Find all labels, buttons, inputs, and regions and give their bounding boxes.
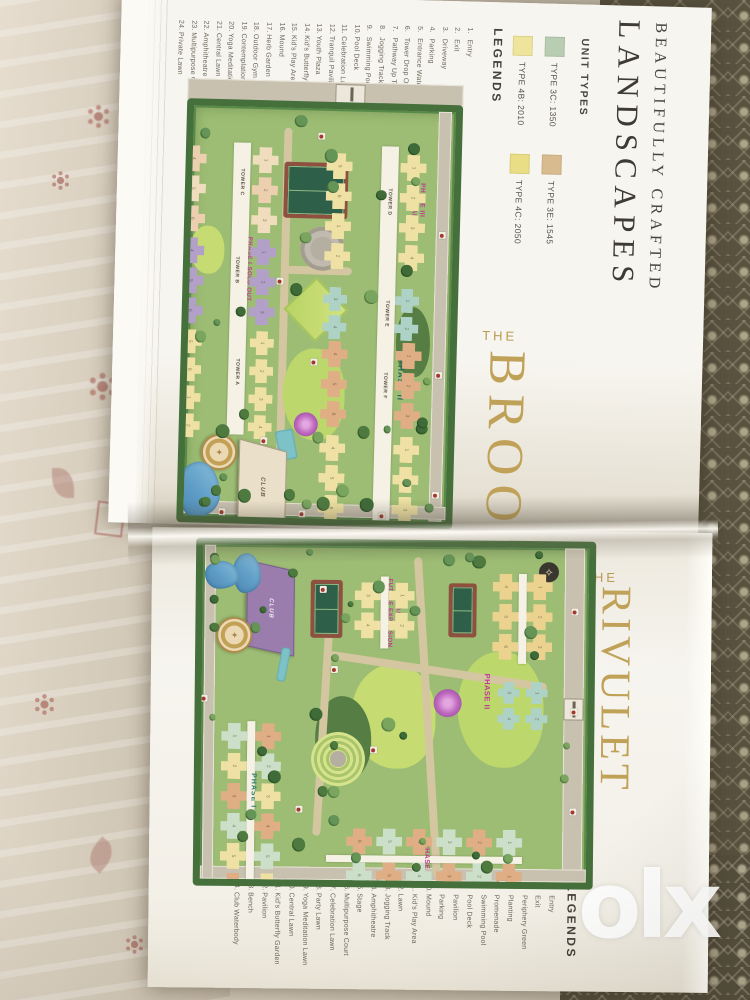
fabric-flower-motif [57, 177, 64, 184]
legend-marker [295, 806, 302, 813]
legend-item: 9.Parking [437, 882, 445, 967]
unit-type-item: TYPE 3E: 1545 [533, 154, 568, 273]
rivulet-site-map: ✧ CLUB ✦ [193, 538, 597, 890]
legend-marker [370, 746, 377, 753]
residential-tower: 6 [183, 357, 201, 382]
legend-item: 15.Stage [355, 881, 363, 966]
tree [300, 232, 311, 243]
residential-tower: 4 [493, 574, 519, 600]
residential-tower: 2 [249, 269, 276, 296]
tree [357, 426, 370, 439]
legend-item: 23.Bench [246, 880, 254, 965]
tree [211, 485, 222, 496]
rivulet-map-canvas: ✧ CLUB ✦ [200, 545, 589, 883]
residential-tower: 3 [254, 783, 280, 809]
legends-title: LEGENDS [564, 883, 579, 959]
tree [200, 128, 211, 139]
fabric-flower-motif [97, 381, 108, 392]
tree [419, 838, 426, 845]
tree [292, 838, 305, 851]
legend-item: 4.Planting [506, 883, 514, 968]
tree [408, 142, 420, 154]
residential-tower: 3 [248, 387, 273, 412]
residential-tower: 1 [496, 830, 522, 856]
tree [330, 741, 339, 750]
residential-tower: 3 [436, 829, 462, 855]
unit-type-swatch [509, 154, 530, 175]
tower-corridor [372, 146, 399, 522]
tree [336, 484, 349, 497]
tree [360, 498, 374, 512]
tree [259, 607, 266, 614]
tree [425, 504, 433, 512]
tree [268, 770, 281, 783]
tower-label: TOWER A [234, 358, 241, 385]
legend-item: 6.Swimming Pool [478, 883, 486, 968]
tree [210, 595, 219, 604]
unit-type-item: TYPE 3C: 1350 [536, 36, 571, 155]
residential-tower: 2 [252, 177, 279, 204]
tree [559, 774, 568, 783]
tree [250, 622, 261, 633]
residential-tower: 1 [250, 331, 275, 356]
tree [209, 714, 216, 721]
tree [401, 265, 413, 277]
fabric-flower-motif [131, 941, 138, 948]
tree [327, 181, 339, 193]
unit-type-label: TYPE 3E: 1545 [545, 181, 557, 245]
pond [205, 561, 239, 589]
club-building: CLUB [237, 439, 287, 522]
lawn [457, 651, 544, 768]
legend-item: 1.Entry [547, 883, 555, 968]
legend-item: 8.Pavilion [451, 882, 459, 967]
tower-label: TOWER C [239, 169, 246, 196]
legend-item: 7.Pool Deck [465, 882, 473, 967]
legend-item: 1.Entry [464, 27, 473, 118]
residential-tower: 1 [255, 723, 281, 749]
legend-marker [432, 492, 439, 499]
legend-item: 22.Pavilion [259, 880, 267, 965]
title-rivulet: RIVULET [590, 586, 640, 794]
legend-marker [201, 695, 208, 702]
tree [417, 417, 428, 428]
unit-types-title: UNIT TYPES [577, 38, 591, 116]
legend-item: 14.Amphitheatre [369, 881, 377, 966]
residential-tower: 2 [466, 829, 492, 855]
legend-item: 10.Mound [424, 882, 432, 967]
legend-item: 5.Promenade [492, 883, 500, 968]
tree [472, 555, 486, 569]
tree [245, 809, 256, 820]
tree [237, 831, 248, 842]
unit-types-legend: TYPE 3C: 1350TYPE 3E: 1545TYPE 4B: 2010T… [501, 35, 571, 267]
residential-tower: 1 [221, 723, 247, 749]
legend-marker [331, 666, 338, 673]
page-the-brook: BEAUTIFULLY CRAFTED LANDSCAPES UNIT TYPE… [108, 0, 712, 538]
residential-tower: 6 [183, 297, 203, 324]
legend-marker [378, 512, 385, 519]
tree [239, 409, 250, 420]
unit-type-item: TYPE 4C: 2050 [501, 153, 536, 272]
legend-item: 11.Kid's Play Area [410, 882, 418, 967]
map-road [428, 112, 452, 522]
residential-tower: 2 [249, 359, 274, 384]
flower-garden [433, 689, 461, 717]
phase2-label: PHASE II [482, 674, 492, 710]
fabric-flower-motif [40, 700, 48, 708]
tower-label: TOWER B [233, 256, 240, 283]
tree [312, 431, 324, 443]
legend-marker [310, 358, 317, 365]
residential-tower: 3 [251, 207, 278, 234]
legend-marker [439, 232, 446, 239]
tree [195, 331, 207, 343]
unit-type-label: TYPE 4C: 2050 [513, 180, 525, 245]
legend-item: 18.Party Lawn [314, 881, 322, 966]
residential-tower: 4 [247, 415, 272, 440]
unit-type-swatch [513, 36, 534, 57]
tree [220, 473, 228, 481]
legends-title: LEGENDS [489, 28, 505, 104]
residential-tower: 5 [183, 175, 206, 202]
club-label: CLUB [259, 476, 265, 498]
tree [472, 852, 480, 860]
legend-item: 20.Central Lawn [287, 881, 295, 966]
gold-emblem: ✦ [216, 617, 252, 653]
tree [283, 489, 295, 501]
legend-item: 21.Kid's Butterfly Garden [273, 880, 281, 965]
tree [376, 190, 387, 201]
tree [340, 613, 350, 623]
legend-marker [499, 881, 506, 883]
club-label: CLUB [267, 597, 273, 619]
residential-tower: 5 [376, 828, 402, 854]
legend-marker [570, 708, 577, 715]
tree [530, 651, 539, 660]
legends-list: 1.Entry2.Exit3.Periphery Green4.Planting… [232, 880, 555, 968]
residential-tower: 5 [492, 604, 518, 630]
legend-marker [569, 808, 576, 815]
residential-tower: 2 [221, 753, 247, 779]
unit-type-swatch [545, 36, 566, 57]
tree [213, 319, 220, 326]
tree [306, 548, 313, 555]
tree [331, 654, 339, 662]
legend-marker [279, 878, 286, 882]
residential-tower: 4 [183, 145, 207, 172]
legend-marker [572, 608, 579, 615]
legend-marker [218, 508, 225, 515]
legend-marker [320, 586, 327, 593]
residential-tower: 6 [346, 828, 372, 854]
brook-map-canvas: CLUB ✦ TOWER D PHASE IIIFUTURE EXPANSION… [183, 105, 456, 522]
unit-type-swatch [541, 154, 562, 175]
tower-corridor [518, 574, 527, 664]
tree [382, 718, 396, 732]
legend-item: 16.Multipurpose Court [342, 881, 350, 966]
unit-type-label: TYPE 4B: 2010 [516, 62, 528, 126]
legend-item: 13.Jogging Track [383, 882, 391, 967]
legend-marker [318, 133, 325, 140]
residential-tower: 1 [250, 239, 277, 266]
amphitheatre [311, 732, 366, 787]
page-heading-line2: LANDSCAPES [604, 19, 647, 290]
tree [410, 606, 420, 616]
tree [423, 377, 432, 386]
residential-tower: 1 [393, 437, 420, 464]
tree [317, 786, 327, 796]
olx-watermark: olx [578, 852, 717, 959]
legend-item: 12.Lawn [396, 882, 404, 967]
tree [481, 861, 493, 873]
residential-tower: 4 [254, 813, 280, 839]
tree [236, 307, 245, 316]
phase1-sold-out-label: PHASE I SOLD OUT [243, 237, 252, 302]
legend-marker [260, 437, 267, 444]
residential-tower: 2 [183, 413, 200, 438]
legend-marker [298, 510, 305, 517]
legend-item: 24.Club Waterbody [232, 880, 240, 965]
tower-label: TOWER F [381, 372, 388, 399]
tree [329, 815, 340, 826]
title-the: THE [482, 328, 517, 344]
unit-type-label: TYPE 3C: 1350 [548, 63, 560, 128]
page-heading-line1: BEAUTIFULLY CRAFTED [644, 22, 669, 293]
tree [288, 568, 298, 578]
tree [535, 551, 543, 559]
brook-site-map: CLUB ✦ TOWER D PHASE IIIFUTURE EXPANSION… [176, 98, 463, 529]
legend-item: 24.Private Lawn [175, 20, 184, 111]
phase1-label: PHASE I [249, 773, 256, 808]
tree [411, 177, 420, 186]
tree [364, 290, 378, 304]
brochure-photo: BEAUTIFULLY CRAFTED LANDSCAPES UNIT TYPE… [0, 0, 750, 1000]
residential-tower: 6 [346, 862, 372, 883]
legend-marker [276, 278, 283, 285]
tree [412, 862, 421, 871]
residential-tower: 3 [248, 299, 275, 326]
legend-marker [379, 879, 386, 882]
unit-type-item: TYPE 4B: 2010 [504, 35, 539, 154]
residential-tower: 1 [183, 385, 200, 410]
legend-marker [435, 372, 442, 379]
tennis-court [448, 583, 477, 637]
tree [327, 786, 339, 798]
tree [237, 489, 251, 503]
residential-tower: 1 [252, 147, 279, 174]
tree [443, 554, 455, 566]
tree [503, 854, 513, 864]
tree [347, 601, 353, 607]
legend-item: 19.Yoga Meditation Lawn [300, 881, 308, 966]
residential-tower: 4 [354, 612, 380, 638]
tree [383, 426, 390, 433]
residential-tower: 3 [220, 783, 246, 809]
legend-item: 2.Exit [533, 883, 541, 968]
legend-item: 17.Celebration Lawn [328, 881, 336, 966]
tower-label: TOWER E [383, 300, 390, 327]
fabric-flower-motif [94, 112, 103, 121]
tree [295, 115, 308, 128]
legend-item: 3.Periphery Green [519, 883, 527, 968]
tower-label: TOWER D [386, 188, 393, 215]
